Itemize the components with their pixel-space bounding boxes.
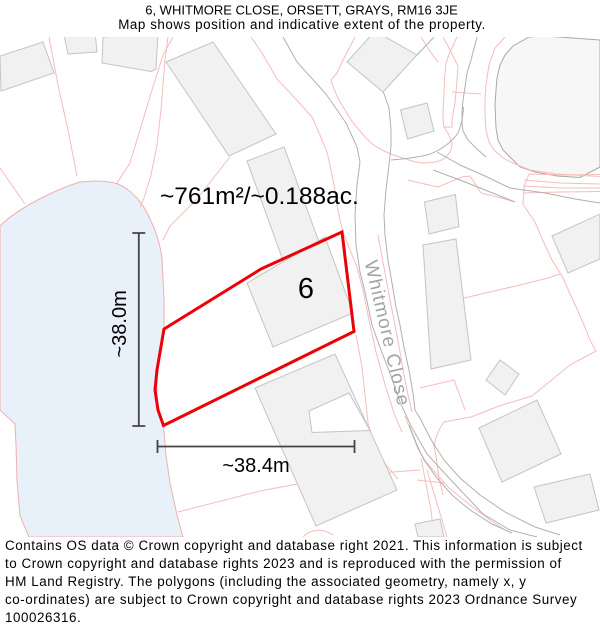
svg-text:co-ordinates) are subject to C: co-ordinates) are subject to Crown copyr… [5, 592, 577, 607]
svg-text:100026316.: 100026316. [5, 610, 81, 625]
svg-text:6, WHITMORE CLOSE, ORSETT, GRA: 6, WHITMORE CLOSE, ORSETT, GRAYS, RM16 3… [145, 3, 458, 18]
svg-text:Contains OS data © Crown copyr: Contains OS data © Crown copyright and d… [5, 538, 583, 553]
svg-text:~38.0m: ~38.0m [109, 290, 131, 357]
svg-text:6: 6 [298, 273, 314, 305]
svg-text:~38.4m: ~38.4m [222, 455, 289, 477]
svg-text:~761m²/~0.188ac.: ~761m²/~0.188ac. [160, 183, 359, 210]
svg-text:HM Land Registry. The polygons: HM Land Registry. The polygons (includin… [5, 574, 526, 589]
svg-text:Map shows position and indicat: Map shows position and indicative extent… [118, 17, 486, 32]
svg-text:to Crown copyright and databas: to Crown copyright and database rights 2… [5, 556, 562, 571]
